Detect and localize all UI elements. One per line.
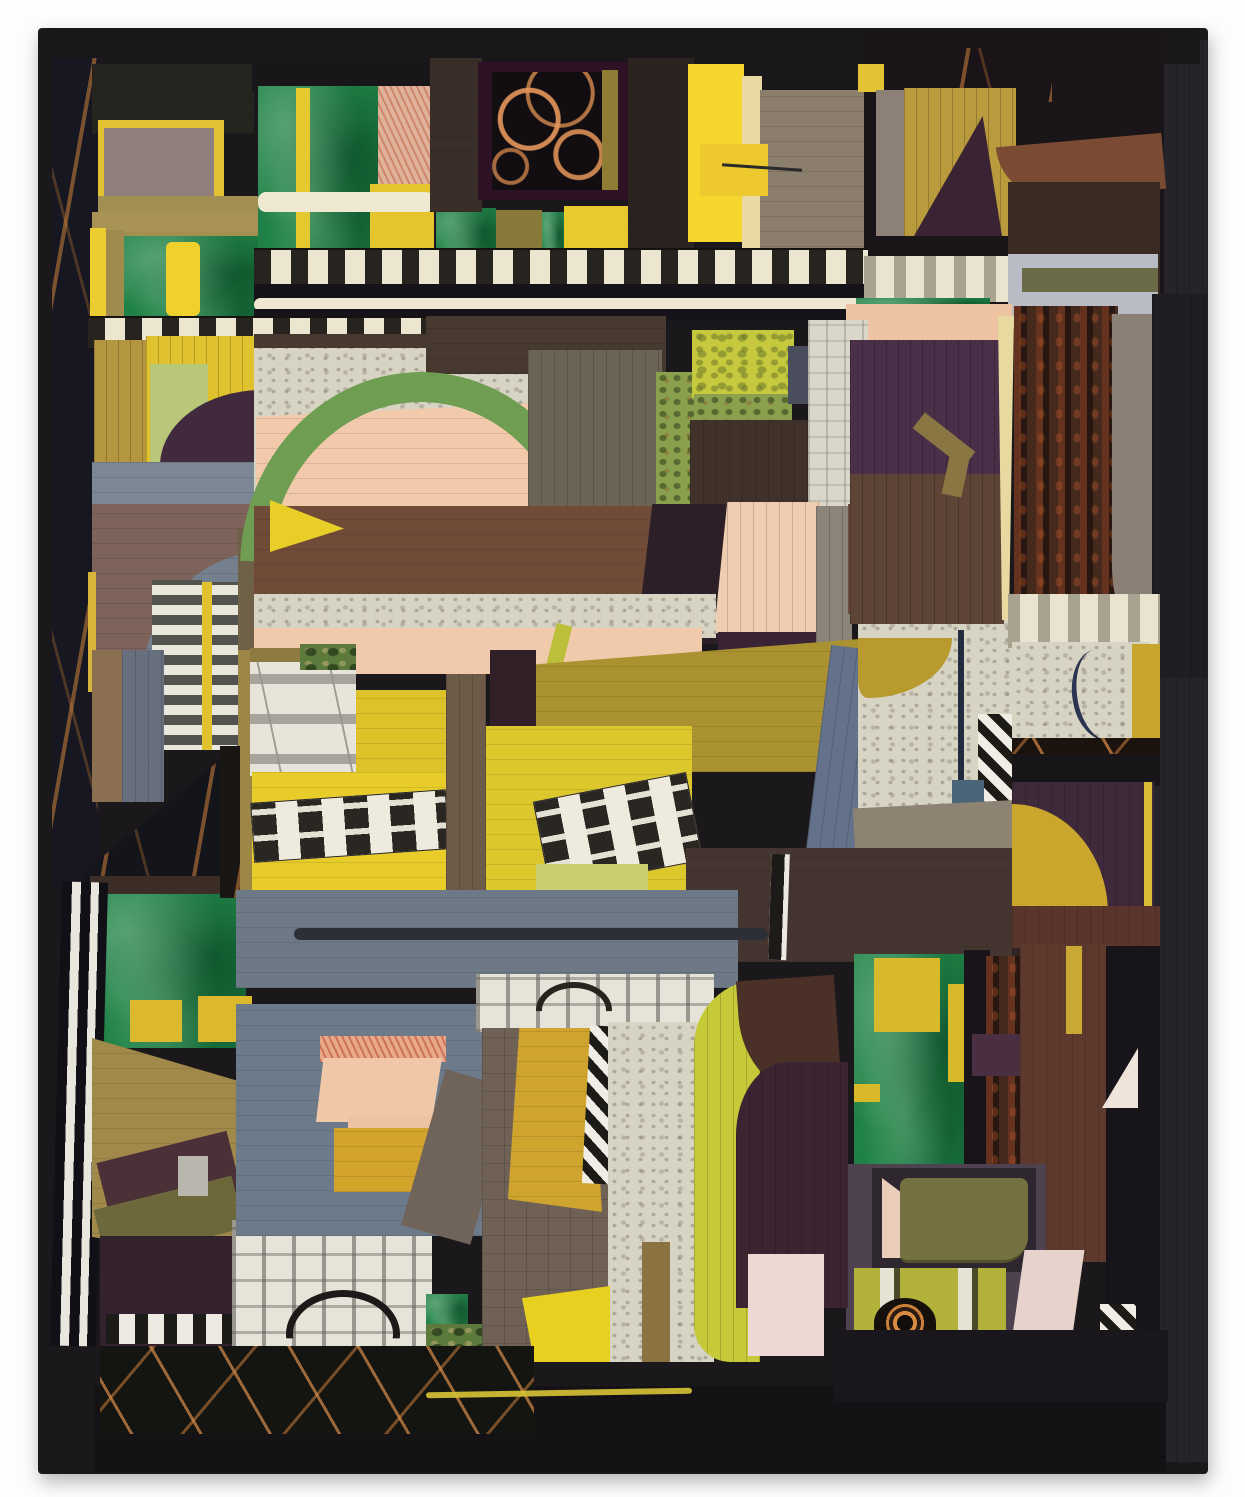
yellow-bit-br	[854, 1084, 880, 1102]
yellow-vstrip	[90, 228, 106, 328]
pink-patch-bc	[748, 1254, 824, 1356]
yellow-strip-grid	[202, 582, 212, 750]
stamp-band-r2	[1008, 594, 1160, 648]
olive-rounded-patch	[900, 1178, 1028, 1263]
yellow-square-tr	[858, 64, 884, 92]
green-tiedye-large	[258, 86, 378, 254]
yellow-square-a	[130, 1000, 182, 1042]
olive-inner-band	[1022, 268, 1158, 292]
dark-brown-col-a	[430, 58, 482, 212]
dark-marble-strip	[220, 746, 240, 898]
yellow-stripe-in-green	[296, 88, 310, 252]
black-col-right	[1152, 294, 1208, 678]
olive-gold-col	[94, 340, 148, 468]
leafy-lower	[694, 394, 792, 422]
yellow-rect-br	[874, 958, 940, 1032]
yellow-pill	[166, 242, 200, 316]
gray-col-left	[122, 650, 164, 802]
dash-strip-bl	[106, 1314, 236, 1344]
peach-streak-block	[378, 86, 434, 190]
dark-brown-block-c	[690, 420, 816, 516]
khaki-strip-bc	[642, 1242, 670, 1362]
window-grid-b	[212, 582, 238, 750]
yellow-strip-br	[948, 984, 964, 1082]
olive-strip-v	[602, 70, 618, 190]
silver-bit	[178, 1156, 208, 1196]
grass-print-fabric	[100, 1346, 534, 1434]
mauve-square	[104, 128, 214, 202]
khaki-vbar	[106, 230, 124, 328]
yellow-upper-bit	[356, 690, 446, 774]
stamped-band-right	[864, 256, 1012, 302]
brown-vstrip	[446, 674, 486, 910]
khaki-hbar	[92, 212, 264, 232]
squiggle-print-square	[492, 72, 616, 190]
right-bottom-fill	[834, 1330, 1168, 1402]
chartreuse-print-block	[692, 330, 794, 398]
plum-col-center	[490, 650, 536, 728]
purple-marbled-top	[850, 340, 1004, 474]
plum-bit-br	[972, 1034, 1020, 1076]
mustard-strip-br2	[1066, 946, 1082, 1034]
bluegray-band	[92, 462, 264, 508]
black-col-br2	[1106, 946, 1160, 1336]
camo-bit-top	[300, 644, 356, 670]
brush-line	[294, 928, 768, 940]
cream-wavy-strip-a	[258, 192, 434, 212]
mustard-patch-r	[1132, 644, 1160, 744]
peach-trap-center	[714, 502, 824, 640]
white-stick	[768, 854, 790, 961]
ornate-column	[1014, 306, 1118, 616]
leafy-strip-v	[656, 372, 694, 514]
birch-block	[250, 662, 356, 776]
quilt-photo	[0, 0, 1245, 1497]
tan-col-left	[92, 650, 122, 802]
olive-gray-block	[528, 350, 662, 516]
peach-trap-a	[316, 1058, 442, 1122]
yellow-note-rect	[700, 144, 768, 196]
yellow-wedge-bc	[522, 1286, 610, 1362]
peach-strip-right	[846, 304, 1012, 344]
brown-strip-thin	[254, 334, 432, 348]
